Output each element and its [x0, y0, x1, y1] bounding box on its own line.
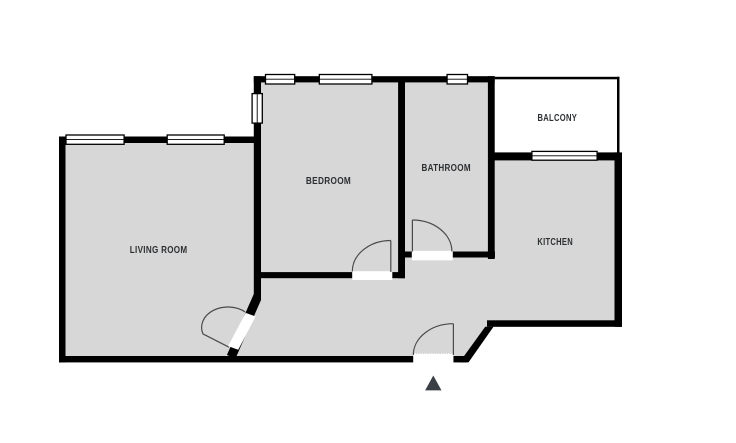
- svg-text:LIVING ROOM: LIVING ROOM: [130, 245, 188, 256]
- svg-text:BATHROOM: BATHROOM: [421, 163, 471, 174]
- svg-text:BEDROOM: BEDROOM: [306, 176, 351, 187]
- svg-text:KITCHEN: KITCHEN: [537, 237, 573, 248]
- svg-text:BALCONY: BALCONY: [538, 113, 578, 124]
